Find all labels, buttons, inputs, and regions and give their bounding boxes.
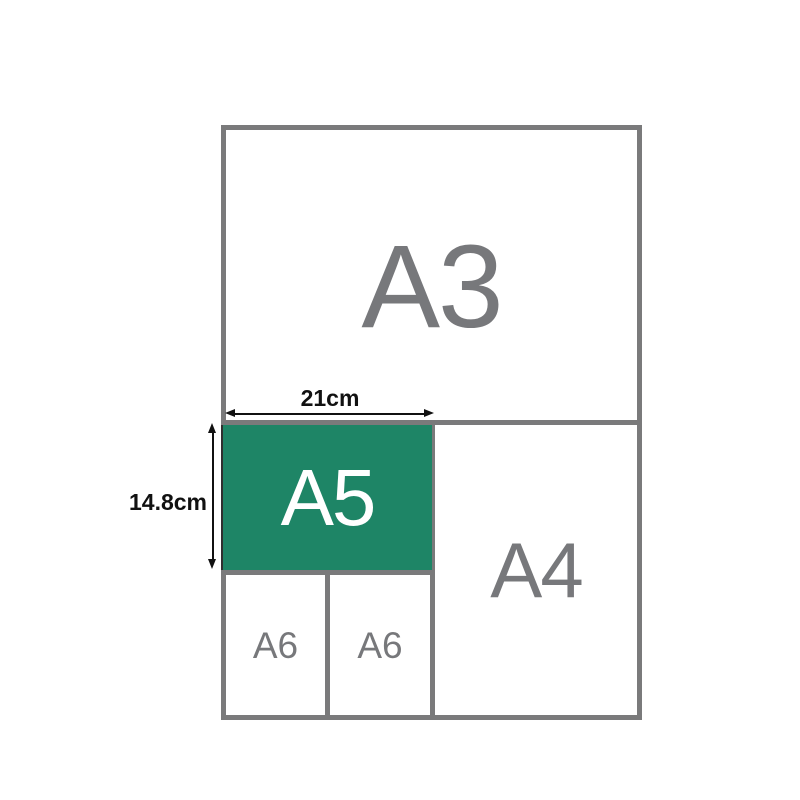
sheet-a6-right-label: A6 bbox=[357, 627, 402, 664]
sheet-a6-left: A6 bbox=[226, 575, 325, 715]
width-dimension-label: 21cm bbox=[225, 387, 435, 410]
sheet-a3-label: A3 bbox=[361, 228, 501, 346]
sheet-a5-highlight: A5 bbox=[221, 425, 432, 570]
height-dimension-arrow bbox=[208, 423, 217, 569]
sheet-a3: A3 bbox=[226, 130, 637, 420]
width-arrow-line bbox=[230, 413, 429, 415]
paper-sizes-diagram: A5 A3 A4 A6 A6 21cm 14.8cm bbox=[0, 0, 800, 800]
height-dimension-label: 14.8cm bbox=[88, 491, 207, 514]
arrowhead-right-icon bbox=[424, 409, 434, 417]
arrowhead-down-icon bbox=[208, 559, 216, 569]
sheet-a6-left-label: A6 bbox=[253, 627, 298, 664]
sheet-a4: A4 bbox=[435, 425, 637, 715]
width-dimension-arrow bbox=[225, 409, 434, 418]
sheet-a5-label: A5 bbox=[281, 458, 375, 538]
sheet-a6-right: A6 bbox=[330, 575, 430, 715]
height-arrow-line bbox=[212, 428, 214, 564]
sheet-a4-label: A4 bbox=[490, 531, 581, 609]
